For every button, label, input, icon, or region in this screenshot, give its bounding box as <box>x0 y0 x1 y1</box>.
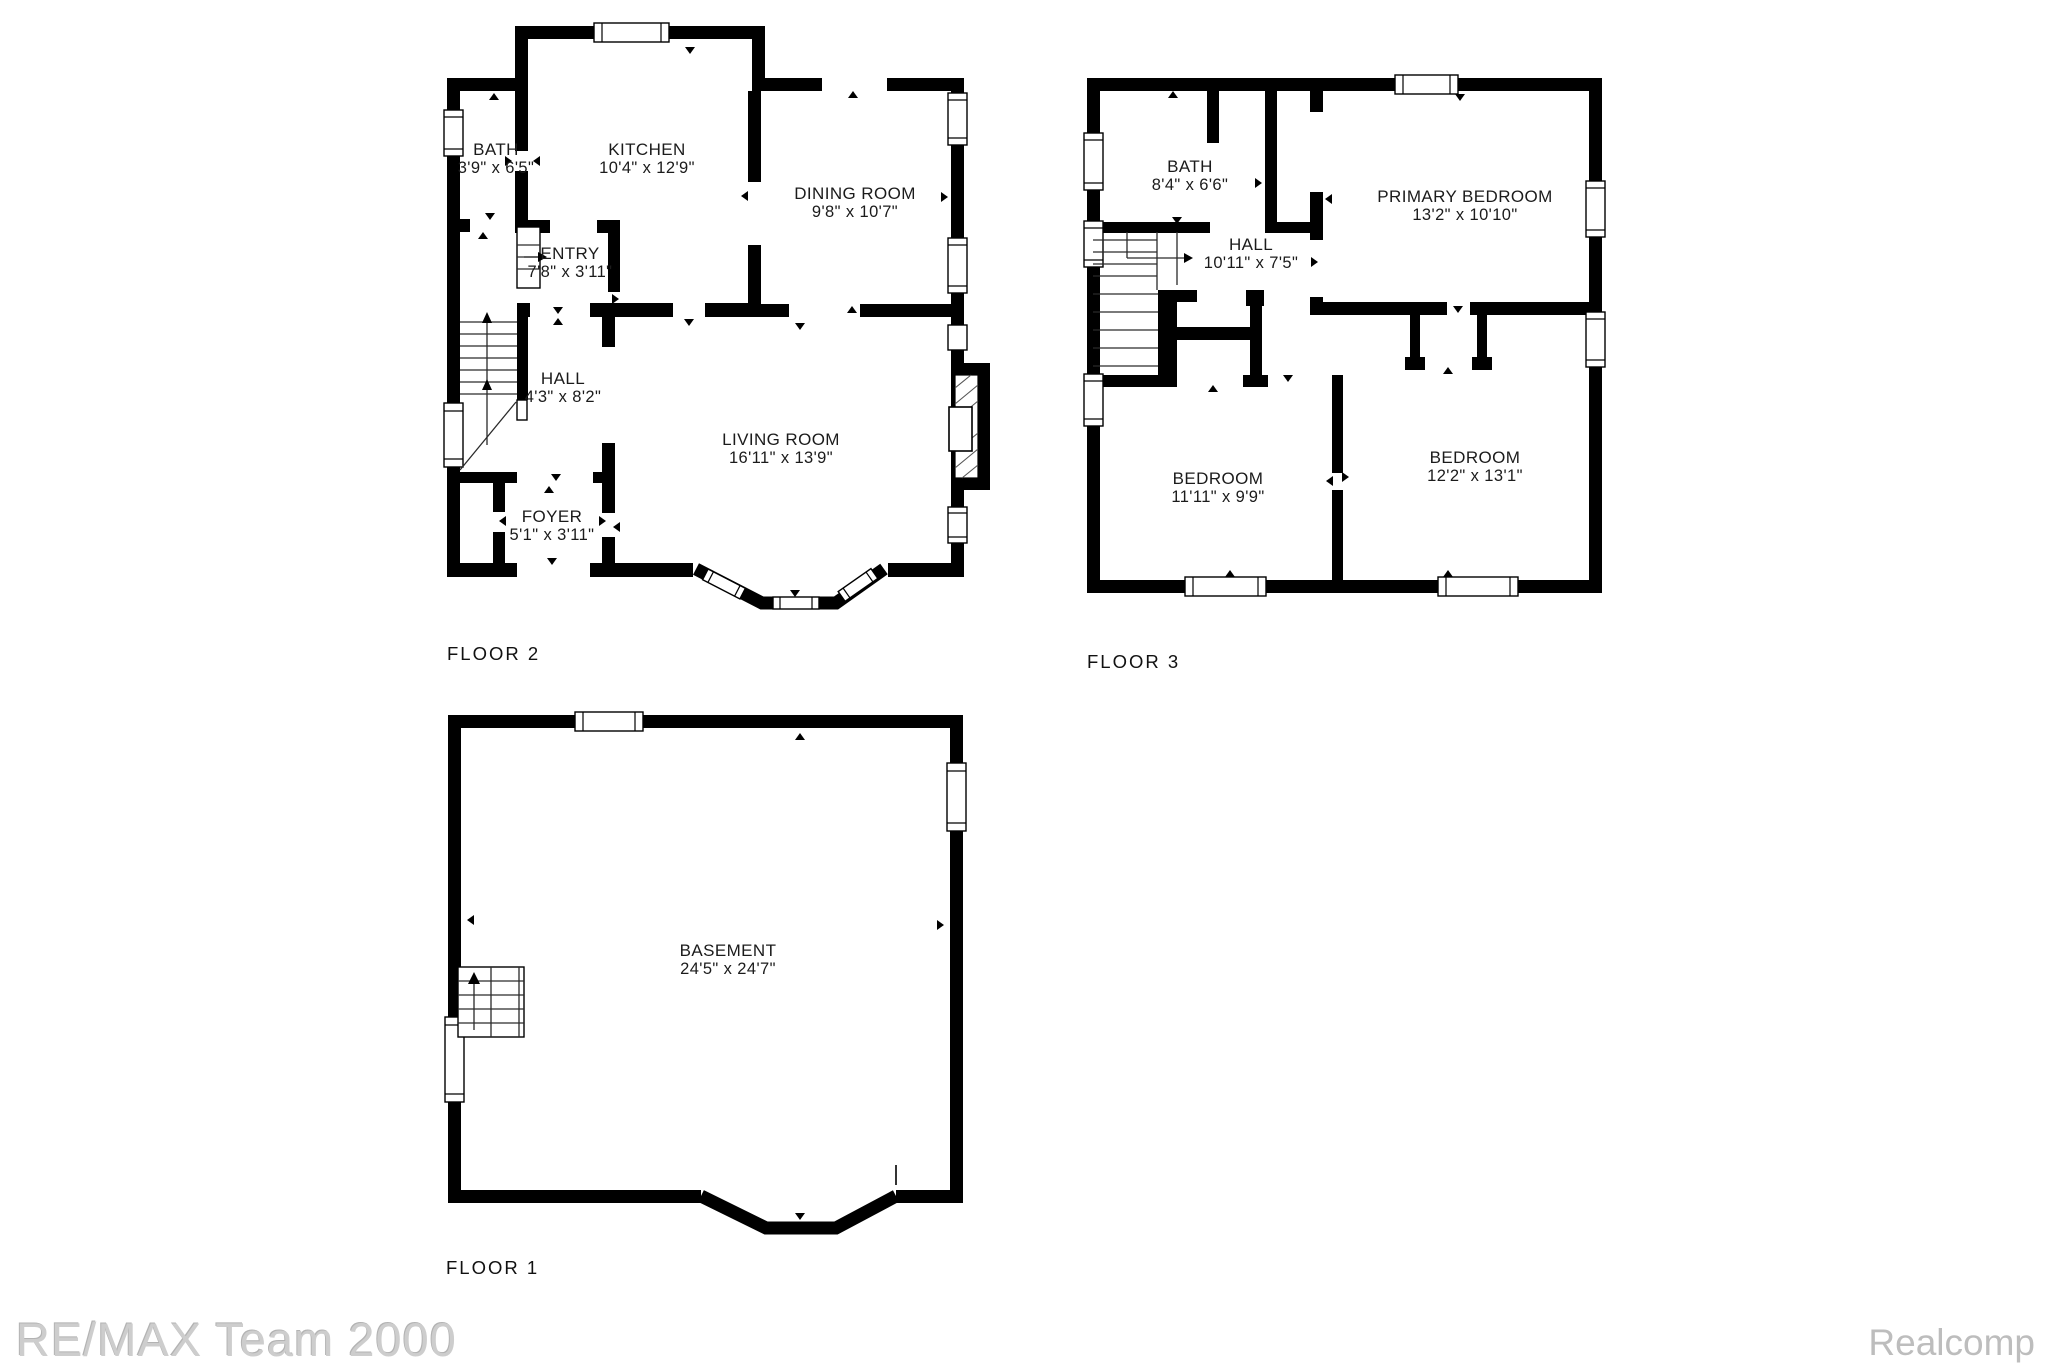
floor3-caption: FLOOR 3 <box>1087 651 1180 673</box>
floor3-room-bath: BATH 8'4" x 6'6" <box>1152 157 1229 195</box>
room-name: DINING ROOM <box>794 184 916 203</box>
floor3-walls <box>1087 78 1602 593</box>
floor2-stairs <box>460 312 527 470</box>
room-name: KITCHEN <box>599 140 695 159</box>
floor3-room-primary-bedroom: PRIMARY BEDROOM 13'2" x 10'10" <box>1377 187 1552 225</box>
room-dims: 3'9" x 6'5" <box>458 159 535 178</box>
room-name: BEDROOM <box>1171 469 1264 488</box>
floor2-room-living: LIVING ROOM 16'11" x 13'9" <box>722 430 840 468</box>
room-dims: 8'4" x 6'6" <box>1152 176 1229 195</box>
room-dims: 10'4" x 12'9" <box>599 159 695 178</box>
floor1-caption: FLOOR 1 <box>446 1257 539 1279</box>
floor3-room-bedroom-right: BEDROOM 12'2" x 13'1" <box>1427 448 1523 486</box>
floor1-plan-drawing <box>440 700 1000 1260</box>
floor1-windows <box>445 712 966 1102</box>
room-name: FOYER <box>510 507 595 526</box>
room-dims: 16'11" x 13'9" <box>722 449 840 468</box>
room-dims: 12'2" x 13'1" <box>1427 467 1523 486</box>
room-name: HALL <box>525 369 602 388</box>
room-name: BATH <box>1152 157 1229 176</box>
room-name: ENTRY <box>528 244 613 263</box>
room-dims: 13'2" x 10'10" <box>1377 206 1552 225</box>
room-dims: 10'11" x 7'5" <box>1204 254 1298 273</box>
room-dims: 7'8" x 3'11" <box>528 263 613 282</box>
floor2-caption: FLOOR 2 <box>447 643 540 665</box>
floor3-room-bedroom-left: BEDROOM 11'11" x 9'9" <box>1171 469 1264 507</box>
floor2-room-dining: DINING ROOM 9'8" x 10'7" <box>794 184 916 222</box>
room-dims: 5'1" x 3'11" <box>510 526 595 545</box>
floor1-room-basement: BASEMENT 24'5" x 24'7" <box>680 941 777 979</box>
room-name: PRIMARY BEDROOM <box>1377 187 1552 206</box>
room-name: HALL <box>1204 235 1298 254</box>
room-name: BATH <box>458 140 535 159</box>
floor2-room-bath: BATH 3'9" x 6'5" <box>458 140 535 178</box>
room-dims: 4'3" x 8'2" <box>525 388 602 407</box>
room-name: BEDROOM <box>1427 448 1523 467</box>
floor2-fireplace <box>949 363 990 490</box>
floor3-room-hall: HALL 10'11" x 7'5" <box>1204 235 1298 273</box>
floorplan-page: { "document_type": "floor-plan", "floors… <box>0 0 2048 1368</box>
room-dims: 9'8" x 10'7" <box>794 203 916 222</box>
floor2-room-kitchen: KITCHEN 10'4" x 12'9" <box>599 140 695 178</box>
room-name: BASEMENT <box>680 941 777 960</box>
room-dims: 11'11" x 9'9" <box>1171 488 1264 507</box>
floor2-room-entry: ENTRY 7'8" x 3'11" <box>528 244 613 282</box>
watermark-realcomp: Realcomp <box>1868 1322 2035 1364</box>
floor2-room-hall: HALL 4'3" x 8'2" <box>525 369 602 407</box>
room-name: LIVING ROOM <box>722 430 840 449</box>
floor2-room-foyer: FOYER 5'1" x 3'11" <box>510 507 595 545</box>
floor1-stairs <box>458 967 524 1037</box>
watermark-remax-team-2000: RE/MAX Team 2000 <box>16 1312 457 1367</box>
room-dims: 24'5" x 24'7" <box>680 960 777 979</box>
